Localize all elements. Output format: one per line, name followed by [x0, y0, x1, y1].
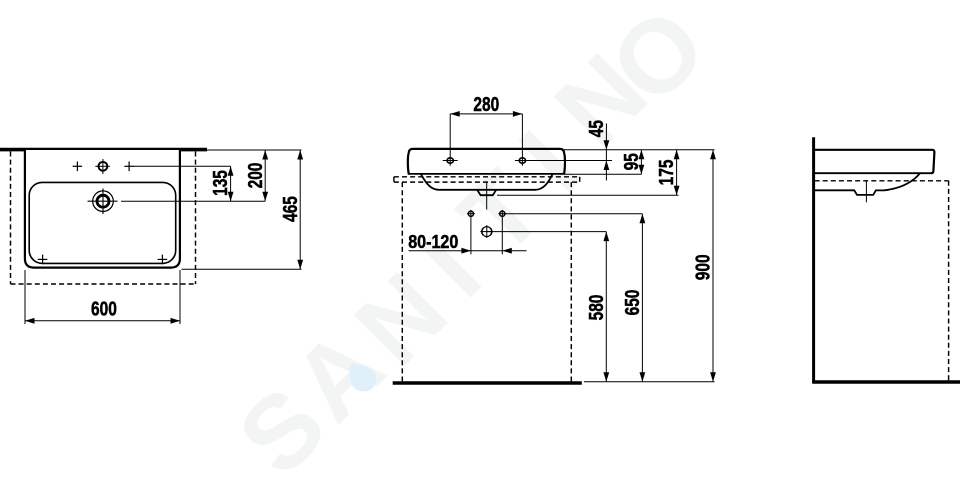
svg-text:465: 465: [279, 196, 301, 222]
svg-text:200: 200: [244, 163, 266, 189]
svg-text:45: 45: [585, 120, 607, 137]
svg-text:135: 135: [209, 170, 231, 196]
svg-text:280: 280: [473, 93, 499, 115]
svg-text:175: 175: [655, 159, 677, 185]
svg-text:580: 580: [585, 295, 607, 321]
svg-text:95: 95: [620, 153, 642, 170]
svg-text:80-120: 80-120: [408, 231, 458, 252]
svg-text:650: 650: [621, 290, 643, 316]
svg-text:900: 900: [692, 254, 714, 280]
svg-text:600: 600: [91, 298, 117, 320]
